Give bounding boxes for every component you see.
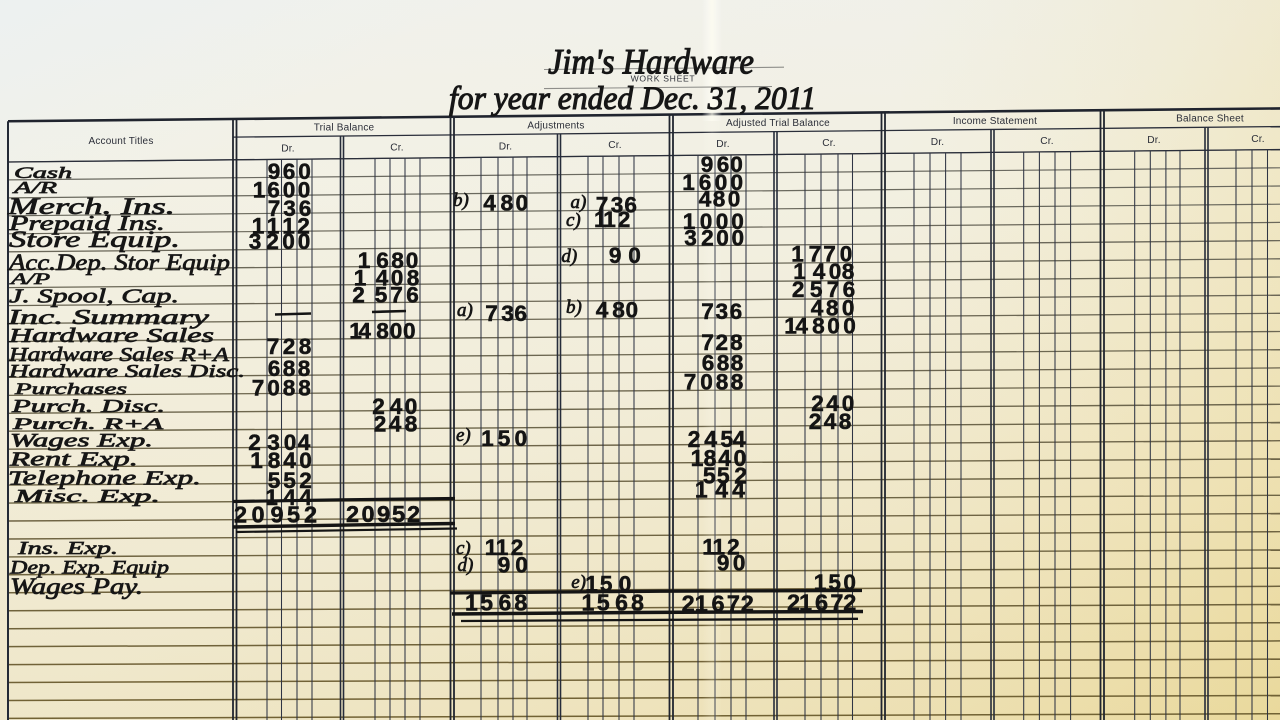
svg-text:7: 7: [252, 376, 265, 401]
svg-text:8: 8: [812, 314, 825, 339]
svg-text:Cr.: Cr.: [390, 142, 404, 153]
svg-text:2: 2: [304, 502, 317, 528]
svg-text:6: 6: [730, 299, 743, 324]
svg-text:Purch. Disc.: Purch. Disc.: [10, 396, 165, 416]
svg-text:7: 7: [684, 370, 697, 395]
svg-text:Cr.: Cr.: [822, 138, 836, 149]
svg-text:2: 2: [266, 229, 279, 254]
svg-text:8: 8: [716, 370, 729, 395]
svg-text:7: 7: [701, 299, 714, 324]
svg-text:1: 1: [691, 445, 704, 471]
svg-text:Dr.: Dr.: [499, 141, 513, 152]
svg-text:2: 2: [701, 226, 714, 251]
svg-text:1: 1: [695, 477, 708, 503]
svg-text:8: 8: [405, 412, 418, 437]
svg-text:0: 0: [515, 426, 528, 451]
svg-text:8: 8: [612, 298, 625, 323]
svg-text:2: 2: [809, 409, 822, 434]
svg-text:Wages Pay.: Wages Pay.: [10, 574, 143, 599]
svg-text:5: 5: [498, 426, 511, 451]
svg-text:1: 1: [481, 426, 494, 451]
svg-text:9: 9: [609, 243, 622, 268]
svg-text:0: 0: [282, 229, 295, 254]
svg-text:for year ended Dec. 31, 2011: for year ended Dec. 31, 2011: [449, 81, 816, 117]
svg-text:0: 0: [628, 243, 641, 268]
svg-text:7: 7: [485, 301, 498, 326]
svg-text:4: 4: [358, 319, 371, 344]
svg-text:J. Spool, Cap.: J. Spool, Cap.: [9, 286, 179, 308]
svg-text:9: 9: [270, 502, 283, 528]
svg-text:8: 8: [283, 376, 296, 401]
svg-text:Hardware Sales Disc.: Hardware Sales Disc.: [8, 361, 245, 381]
svg-text:Trial Balance: Trial Balance: [314, 122, 375, 133]
svg-text:8: 8: [713, 187, 726, 212]
svg-text:2: 2: [234, 502, 247, 528]
svg-text:6: 6: [514, 301, 527, 326]
svg-text:0: 0: [267, 376, 280, 401]
svg-text:5: 5: [375, 283, 388, 308]
svg-text:0: 0: [700, 370, 713, 395]
svg-text:b): b): [453, 190, 469, 211]
svg-text:2: 2: [352, 283, 365, 308]
svg-text:0: 0: [716, 226, 729, 251]
svg-text:1: 1: [603, 207, 616, 232]
svg-text:4: 4: [483, 191, 496, 216]
svg-text:Cr.: Cr.: [1251, 134, 1265, 145]
svg-text:1: 1: [250, 448, 263, 473]
svg-text:2: 2: [346, 501, 359, 527]
svg-text:4: 4: [596, 298, 609, 323]
svg-text:Cr.: Cr.: [1040, 136, 1054, 147]
svg-text:9: 9: [498, 553, 511, 578]
svg-text:Income Statement: Income Statement: [953, 116, 1037, 127]
svg-text:d): d): [458, 555, 474, 576]
svg-text:0: 0: [626, 298, 639, 323]
svg-text:Dr.: Dr.: [281, 143, 295, 154]
svg-text:8: 8: [298, 376, 311, 401]
svg-text:Balance Sheet: Balance Sheet: [1176, 114, 1244, 125]
svg-text:0: 0: [298, 229, 311, 254]
svg-text:a): a): [457, 300, 473, 321]
svg-text:3: 3: [684, 226, 697, 251]
svg-text:8: 8: [501, 191, 514, 216]
svg-text:0: 0: [827, 314, 840, 339]
svg-text:4: 4: [699, 187, 712, 212]
svg-text:Adjustments: Adjustments: [527, 120, 584, 131]
svg-text:Adjusted Trial Balance: Adjusted Trial Balance: [726, 118, 830, 129]
svg-text:1: 1: [253, 178, 266, 203]
svg-text:Dr.: Dr.: [1147, 135, 1161, 146]
svg-text:Cr.: Cr.: [608, 140, 622, 151]
svg-text:8: 8: [376, 319, 389, 344]
svg-text:3: 3: [501, 301, 514, 326]
svg-text:Dr.: Dr.: [931, 137, 945, 148]
svg-text:Store Equip.: Store Equip.: [9, 227, 180, 252]
svg-text:2: 2: [792, 277, 805, 302]
svg-text:4: 4: [824, 409, 837, 434]
svg-text:0: 0: [390, 319, 403, 344]
svg-text:9: 9: [717, 551, 730, 576]
svg-text:7: 7: [390, 283, 403, 308]
svg-text:3: 3: [249, 229, 262, 254]
svg-text:c): c): [566, 210, 581, 231]
svg-text:2: 2: [618, 207, 631, 232]
svg-text:8: 8: [731, 370, 744, 395]
svg-text:2: 2: [374, 412, 387, 437]
svg-text:0: 0: [515, 553, 528, 578]
svg-text:4: 4: [389, 412, 402, 437]
svg-text:0: 0: [732, 226, 745, 251]
svg-text:Ins. Exp.: Ins. Exp.: [16, 538, 118, 558]
svg-text:4: 4: [715, 477, 728, 503]
svg-text:4: 4: [732, 477, 745, 503]
svg-text:Account Titles: Account Titles: [88, 136, 153, 147]
svg-text:0: 0: [843, 314, 856, 339]
svg-text:Jim's Hardware: Jim's Hardware: [548, 42, 754, 82]
svg-text:0: 0: [728, 187, 741, 212]
svg-text:b): b): [566, 297, 582, 318]
svg-text:Dr.: Dr.: [716, 139, 730, 150]
svg-text:3: 3: [716, 299, 729, 324]
svg-text:1: 1: [682, 170, 695, 195]
svg-text:0: 0: [403, 319, 416, 344]
svg-text:8: 8: [839, 409, 852, 434]
svg-text:e): e): [456, 425, 471, 446]
svg-text:d): d): [561, 246, 577, 267]
svg-text:4: 4: [795, 314, 808, 339]
svg-text:5: 5: [287, 502, 300, 528]
svg-text:Misc. Exp.: Misc. Exp.: [13, 486, 160, 506]
svg-text:0: 0: [733, 551, 746, 576]
svg-text:6: 6: [406, 283, 419, 308]
svg-text:0: 0: [251, 502, 264, 528]
svg-text:0: 0: [516, 191, 529, 216]
